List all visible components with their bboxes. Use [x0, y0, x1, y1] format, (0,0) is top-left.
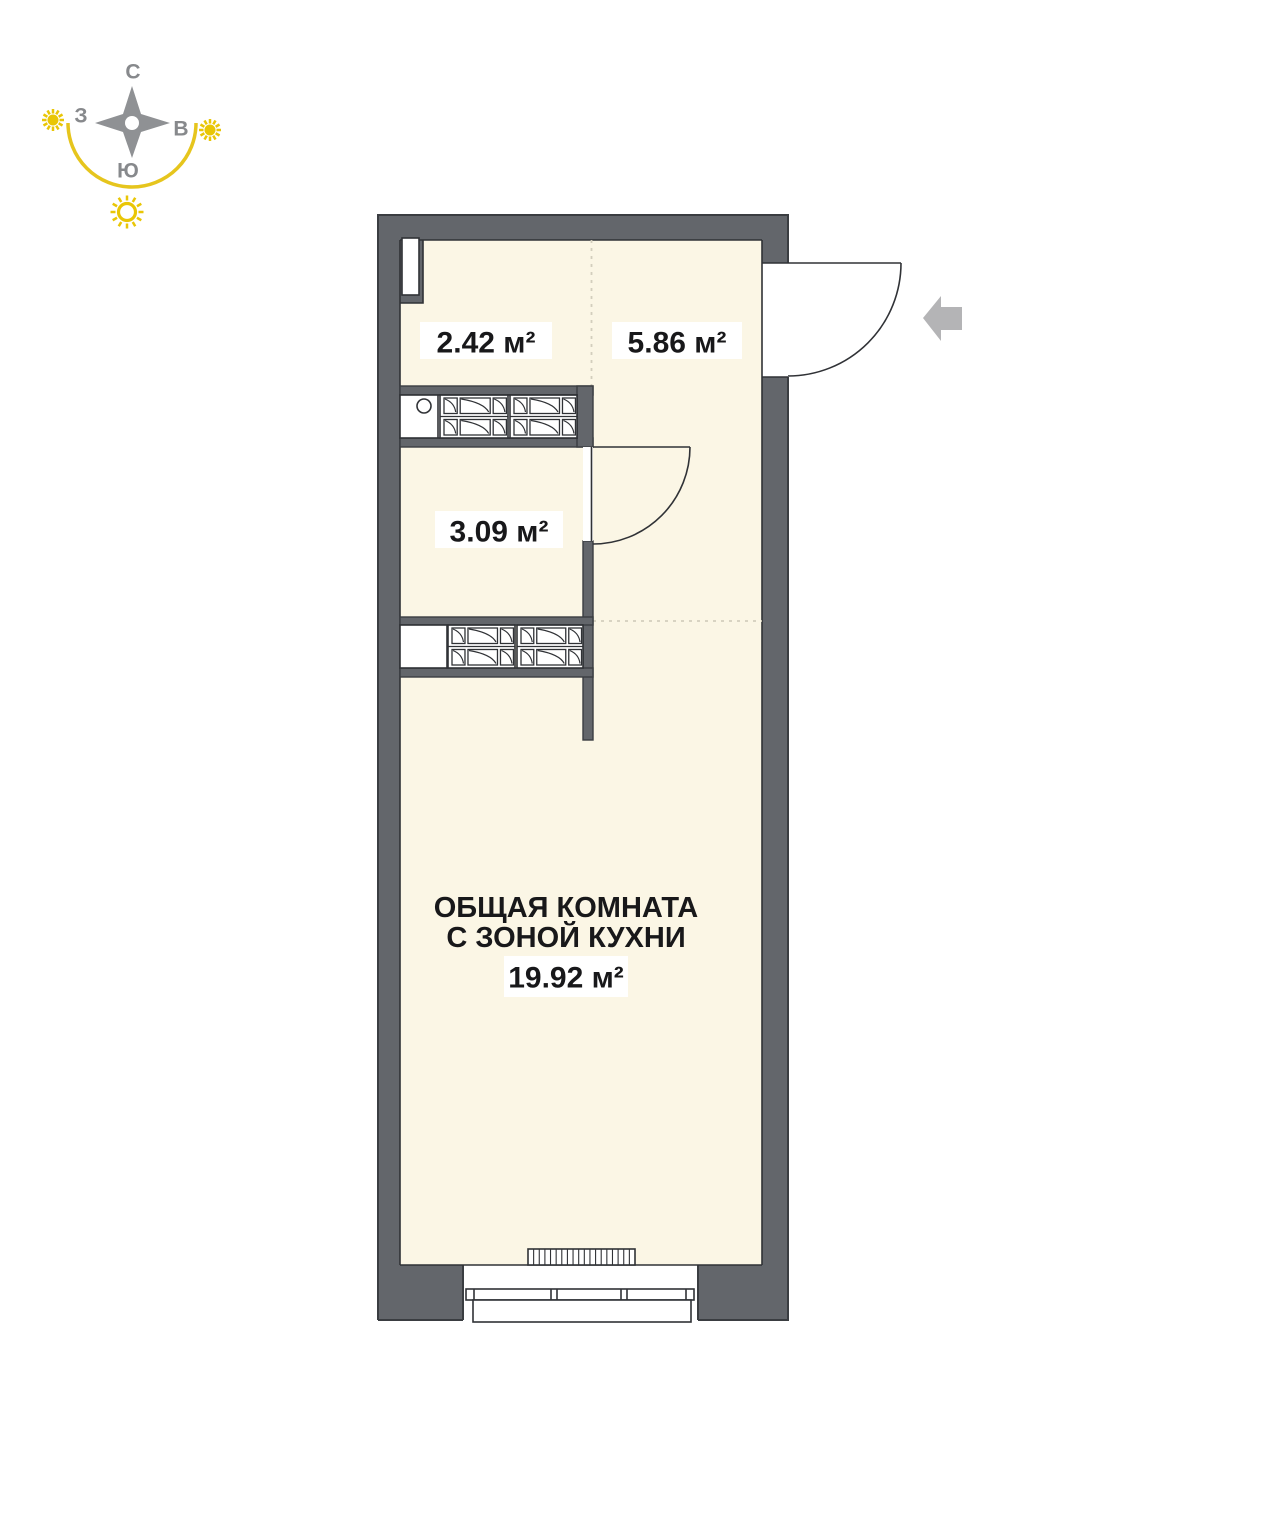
main-room-title-line2: С ЗОНОЙ КУХНИ [446, 920, 685, 954]
entrance-arrow-icon [923, 296, 962, 341]
sun-ray [113, 204, 117, 207]
cabinet-cell [468, 650, 498, 666]
compass-south-label: Ю [117, 160, 139, 183]
compass: С В З Ю [42, 61, 221, 229]
compass-north-label: С [125, 61, 140, 84]
cabinet-cell [460, 398, 490, 414]
hall-closet-area-label: 2.42 м² [437, 327, 536, 360]
compass-east-label: В [173, 118, 188, 141]
sun-ray [113, 218, 117, 221]
cabinet-cell [530, 420, 560, 436]
sun-ray [133, 222, 136, 226]
wall-left [378, 215, 400, 1320]
sun-icon-east [199, 119, 221, 141]
sun-ray [43, 123, 47, 125]
sun-core [205, 125, 216, 136]
sink-icon [417, 399, 431, 413]
sun-ray [119, 198, 122, 202]
partition-wall [583, 541, 593, 740]
sun-ray [200, 125, 204, 127]
wall-top [378, 215, 788, 240]
cabinet-module [517, 625, 583, 668]
radiator-icon [528, 1249, 635, 1265]
sun-ray [216, 133, 220, 135]
wall-right-main [762, 377, 788, 1320]
sun-ray [213, 136, 215, 140]
top-cabinet-unit [400, 386, 593, 447]
compass-west-label: З [74, 105, 87, 128]
cabinet-module [510, 395, 577, 438]
bottom-cabinet-unit [400, 617, 593, 677]
sun-ray [43, 115, 47, 117]
cabinet-cell [460, 420, 490, 436]
compass-center-dot [125, 116, 139, 130]
sun-ray [59, 115, 63, 117]
cabinet-cell [468, 628, 498, 644]
sun-ray [133, 198, 136, 202]
floor-plan: 2.42 м² 5.86 м² 3.09 м² ОБЩАЯ КОМНАТА С … [378, 215, 901, 1322]
sun-core [119, 204, 136, 221]
sun-ray [48, 110, 50, 114]
entrance-door [788, 263, 901, 376]
cabinet-cell [530, 398, 560, 414]
sun-ray [137, 204, 141, 207]
sun-icon-west [42, 109, 64, 131]
sun-ray [200, 133, 204, 135]
cabinet-cell [537, 628, 566, 644]
sun-core [48, 115, 59, 126]
sun-ray [137, 218, 141, 221]
vent-niche [402, 238, 419, 295]
sun-ray [48, 126, 50, 130]
cabinet-module [448, 625, 515, 668]
cabinet-module [440, 395, 508, 438]
sun-ray [119, 222, 122, 226]
window-sill [473, 1300, 691, 1322]
window-frame [466, 1289, 694, 1300]
sun-icon-south [111, 196, 144, 229]
sun-ray [56, 126, 58, 130]
wall-right-upper [762, 215, 788, 263]
sun-ray [213, 120, 215, 124]
window [466, 1289, 694, 1322]
main-room-title-line1: ОБЩАЯ КОМНАТА [434, 892, 699, 924]
door-swing-arc [788, 263, 901, 376]
floorplan-page: С В З Ю [0, 0, 1278, 1536]
sun-ray [56, 110, 58, 114]
hallway-area-label: 5.86 м² [628, 327, 727, 360]
floorplan-svg: С В З Ю [0, 0, 1278, 1536]
sun-ray [59, 123, 63, 125]
sun-ray [205, 120, 207, 124]
bathroom-area-label: 3.09 м² [450, 516, 549, 549]
cabinet-cell [537, 650, 566, 666]
sun-ray [216, 125, 220, 127]
sun-ray [205, 136, 207, 140]
main-room-area-label: 19.92 м² [508, 962, 624, 995]
